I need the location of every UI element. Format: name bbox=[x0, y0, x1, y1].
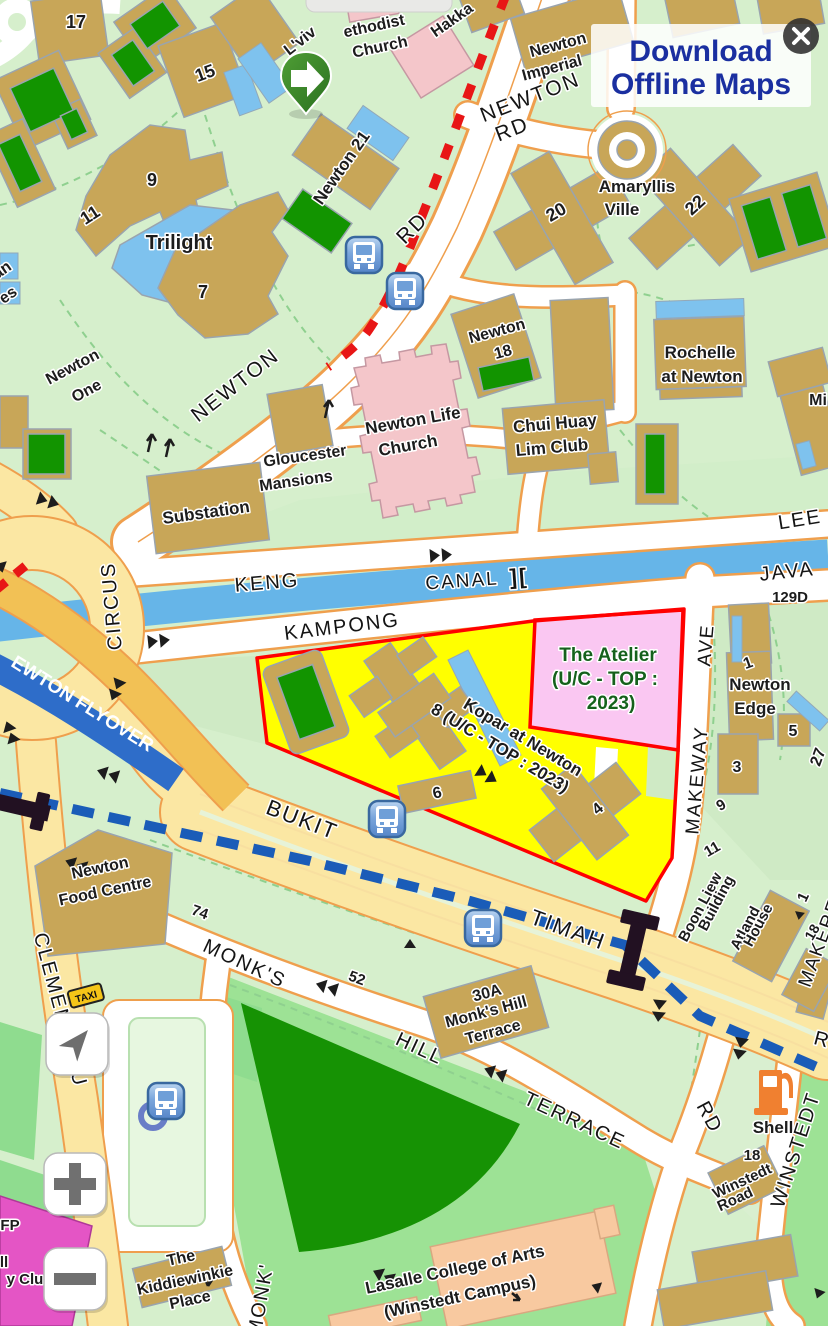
svg-text:(U/C - TOP :: (U/C - TOP : bbox=[552, 669, 658, 690]
svg-text:Rochelle: Rochelle bbox=[665, 343, 736, 362]
svg-text:Trilight: Trilight bbox=[146, 232, 213, 254]
svg-text:5: 5 bbox=[789, 723, 798, 740]
svg-text:FP: FP bbox=[0, 1217, 19, 1234]
svg-text:2023): 2023) bbox=[587, 693, 636, 714]
svg-text:][: ][ bbox=[509, 563, 529, 589]
svg-text:The Atelier: The Atelier bbox=[559, 645, 657, 666]
svg-text:ll: ll bbox=[0, 1254, 8, 1271]
svg-text:Newton: Newton bbox=[729, 675, 790, 694]
svg-text:17: 17 bbox=[66, 12, 86, 32]
svg-text:AVE: AVE bbox=[694, 623, 719, 667]
svg-text:Edge: Edge bbox=[734, 699, 776, 718]
svg-text:Offline Maps: Offline Maps bbox=[611, 68, 791, 101]
svg-text:Ville: Ville bbox=[605, 200, 640, 219]
svg-text:18: 18 bbox=[744, 1147, 761, 1164]
svg-text:129D: 129D bbox=[772, 589, 808, 606]
svg-text:9: 9 bbox=[147, 170, 157, 190]
svg-text:at Newton: at Newton bbox=[661, 367, 742, 386]
svg-text:Download: Download bbox=[629, 35, 772, 68]
svg-text:Shell: Shell bbox=[753, 1118, 794, 1137]
svg-text:Mi: Mi bbox=[809, 392, 827, 409]
svg-text:y Clu: y Clu bbox=[7, 1271, 44, 1288]
svg-text:7: 7 bbox=[198, 282, 208, 302]
svg-text:3: 3 bbox=[733, 759, 742, 776]
svg-text:Amaryllis: Amaryllis bbox=[599, 177, 676, 196]
